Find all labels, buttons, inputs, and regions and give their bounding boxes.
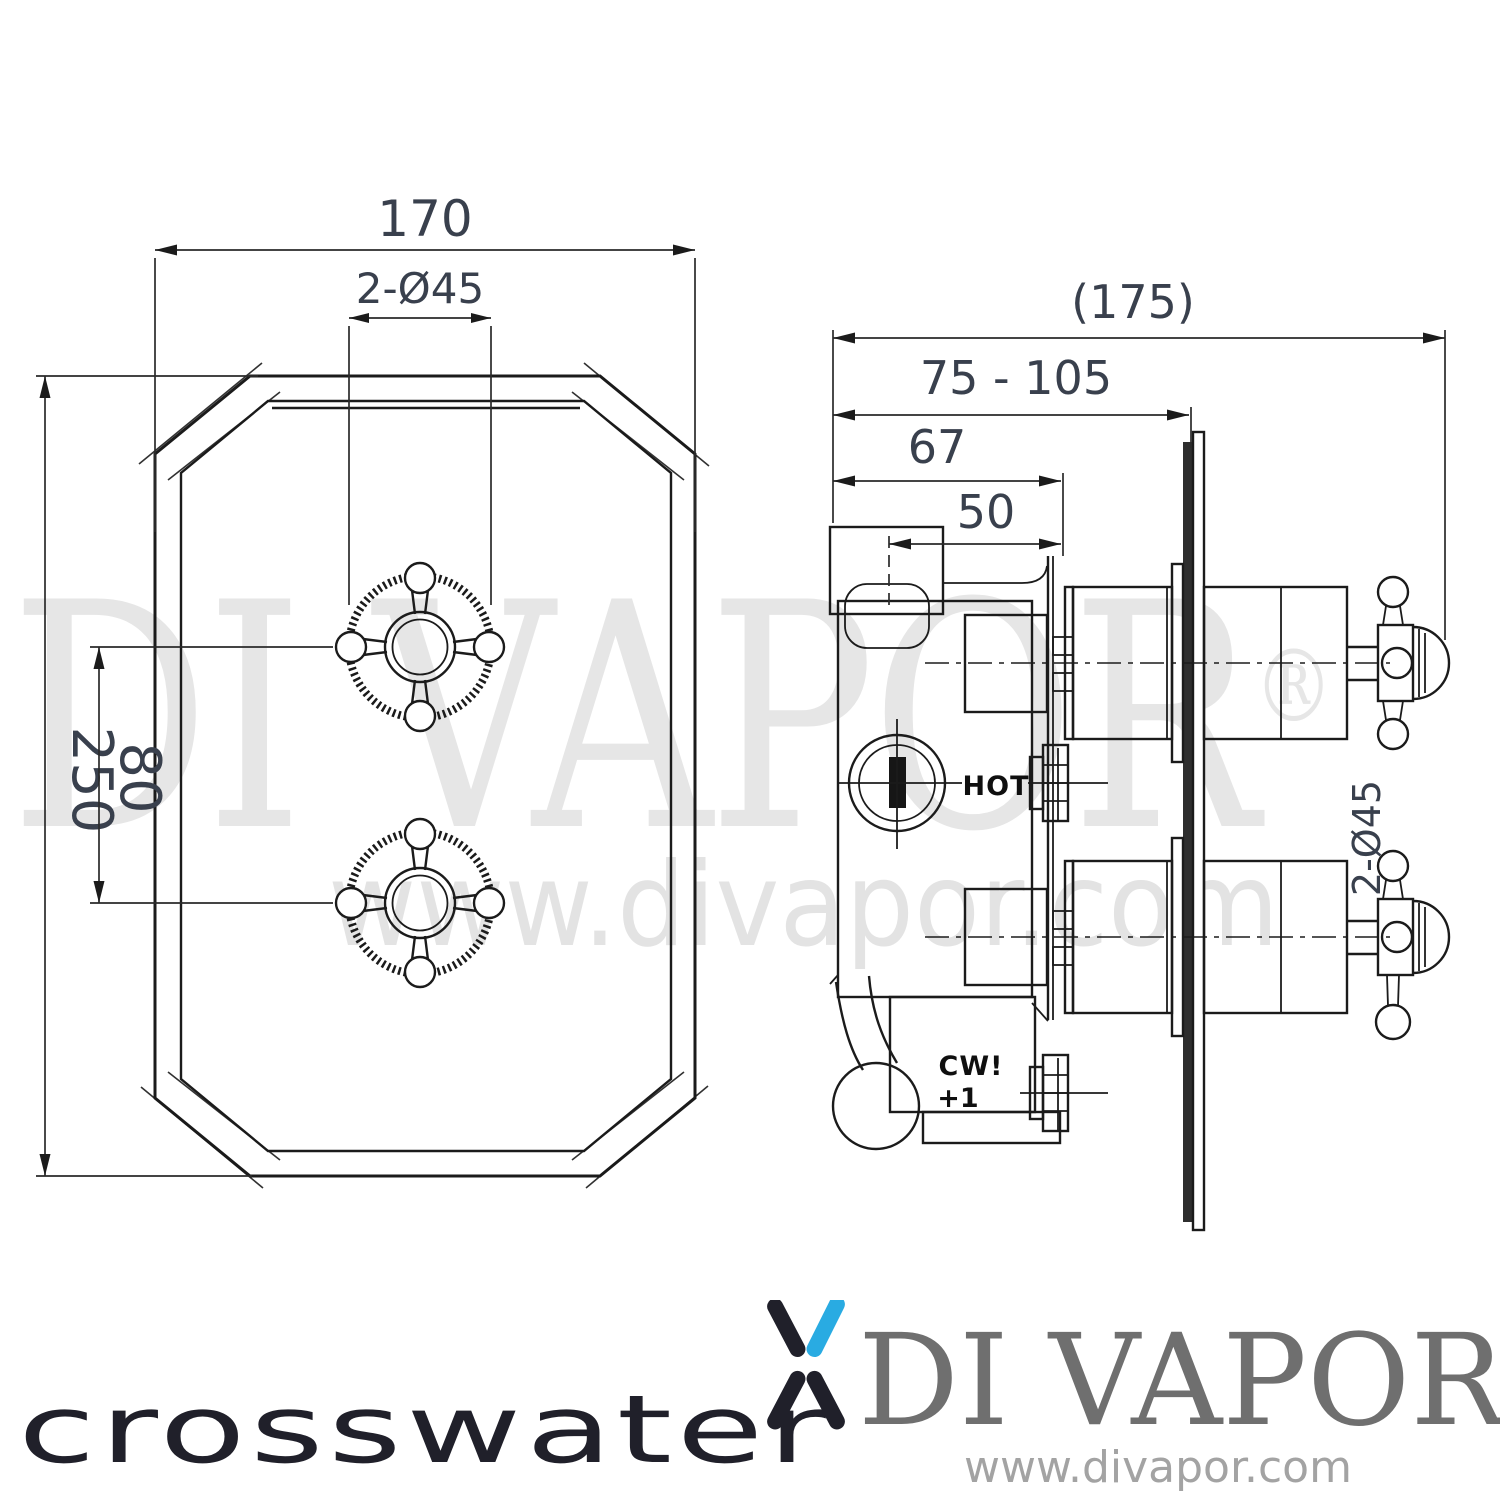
face-plate-edge: [1193, 432, 1204, 1230]
handle-ball-west: [336, 888, 366, 918]
handle-ball-west: [336, 632, 366, 662]
handle-ball-bottom: [1378, 719, 1408, 749]
dim-width-170: 170: [155, 190, 695, 532]
dim-bracket-67: 67: [833, 420, 1063, 556]
divapor-logo: DI VAPOR®: [858, 1318, 1500, 1444]
handle-teardrop: [1376, 1005, 1410, 1039]
finished-wall-section: [1183, 442, 1193, 1222]
hot-port-fitting: [1028, 745, 1108, 821]
bottom-cross-handle: [336, 819, 504, 987]
plate-inner-octagon: [181, 401, 671, 1151]
handle-arms: [363, 590, 477, 704]
handle-ball-top: [1378, 577, 1408, 607]
hub-inner: [393, 620, 448, 675]
cartridge-screw: [838, 719, 962, 849]
body-top-corner: [943, 566, 1047, 583]
dim-port-label: 50: [957, 485, 1016, 539]
corner-sketch-strokes: [139, 363, 709, 1188]
valve-body: HOT CW! +1: [830, 527, 1108, 1149]
handle-ball-east: [474, 888, 504, 918]
dim-depth-label: 75 - 105: [920, 351, 1112, 405]
hub-outer: [385, 612, 455, 682]
crosswater-x-icon: [764, 1300, 848, 1430]
dim-holes-label: 2-Ø45: [356, 264, 484, 313]
body-boss: [845, 584, 929, 648]
dim-holes-2d45: 2-Ø45: [349, 264, 491, 605]
dim-width-label: 170: [377, 190, 472, 248]
dim-spacing-label: 80: [107, 742, 172, 813]
hub-inner: [393, 876, 448, 931]
dim-bracket-label: 67: [908, 420, 967, 474]
handle-ball-north: [405, 563, 435, 593]
crosswater-logo: crosswater: [18, 1384, 830, 1478]
cold-inlet-flange: [923, 1112, 1060, 1143]
handle-ball-south: [405, 957, 435, 987]
dim-spacing-80: 80: [90, 647, 333, 903]
front-view: 170 2-Ø45 250: [36, 190, 709, 1188]
cold-port-fitting: [1020, 1055, 1108, 1131]
hot-label: HOT: [963, 771, 1030, 802]
technical-drawing-page: DI VAPOR® www.divapor.com: [0, 0, 1500, 1500]
handle-ball-north: [405, 819, 435, 849]
cw-label: CW!: [939, 1051, 1004, 1082]
rosette-ring: [349, 576, 491, 718]
divapor-logo-text: DI VAPOR: [858, 1307, 1500, 1454]
handle-ball-south: [405, 701, 435, 731]
top-cross-handle: [336, 563, 504, 731]
dim-port-50: 50: [889, 485, 1061, 612]
plus1-label: +1: [937, 1083, 978, 1114]
handle-arms: [363, 846, 477, 960]
divapor-url: www.divapor.com: [908, 1446, 1408, 1490]
dim-trim-label: 2-Ø45: [1345, 780, 1389, 896]
elbow-pipe: [830, 975, 919, 1149]
dim-depth-75-105: 75 - 105: [833, 351, 1191, 448]
side-view: HOT CW! +1: [830, 275, 1449, 1230]
valve-technical-drawing: 170 2-Ø45 250: [0, 0, 1500, 1500]
dim-overall-label: (175): [1071, 275, 1195, 329]
plate-outer-octagon: [155, 376, 695, 1176]
handle-ball-east: [474, 632, 504, 662]
rosette-ring: [349, 832, 491, 974]
hub-outer: [385, 868, 455, 938]
